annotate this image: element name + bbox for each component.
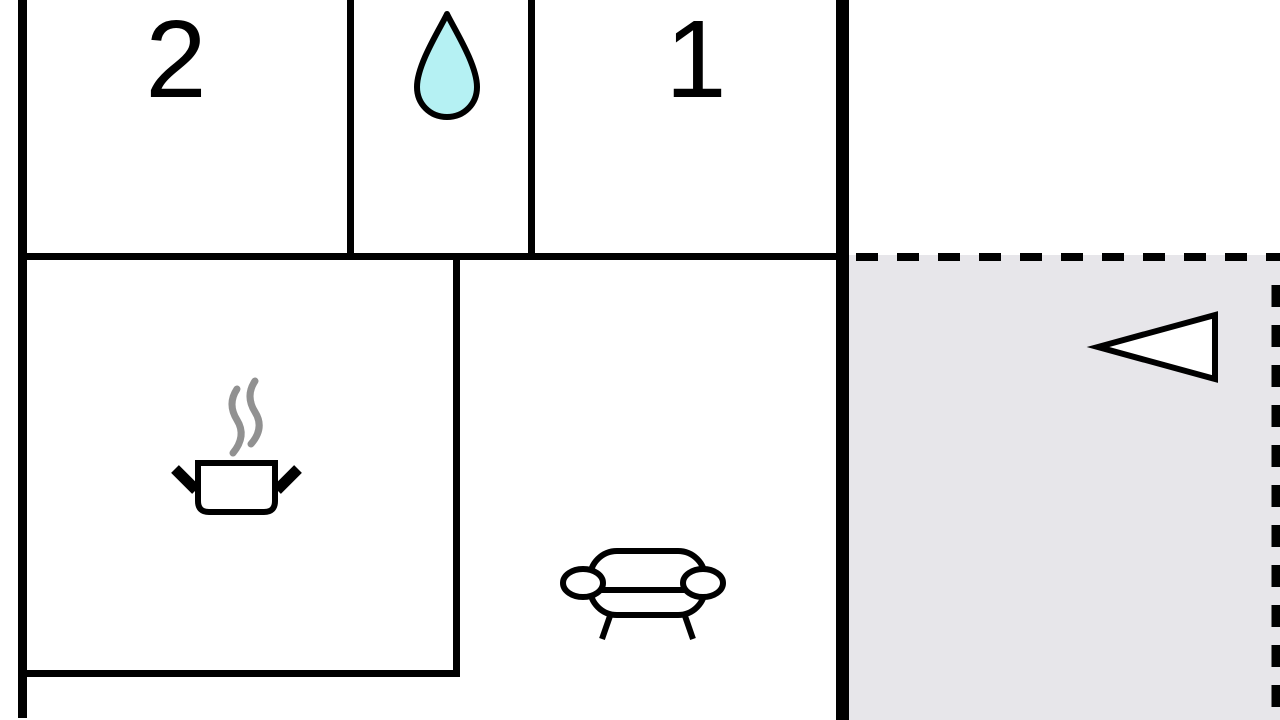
- sofa-leg-left: [602, 616, 610, 639]
- steam-wave-left: [232, 389, 241, 453]
- room-label-bedroom1: 1: [665, 0, 726, 121]
- steam-wave-right: [250, 381, 259, 444]
- wall-bathroom-bedroom1: [528, 0, 535, 258]
- wall-kitchen-living: [453, 253, 460, 677]
- sofa-armrest-right: [683, 569, 723, 597]
- water-drop-icon: [417, 14, 477, 117]
- wall-left: [18, 0, 27, 718]
- wall-horizontal-main: [18, 253, 849, 260]
- sofa-leg-right: [685, 616, 693, 639]
- wall-bedroom2-bathroom: [347, 0, 354, 258]
- pot-body: [198, 463, 275, 512]
- floor-plan-drawing: 2 1: [0, 0, 1280, 720]
- wall-kitchen-bottom: [18, 670, 460, 677]
- sofa-icon: [563, 551, 723, 639]
- cooking-pot-icon: [175, 381, 298, 512]
- sofa-armrest-left: [563, 569, 603, 597]
- room-label-bedroom2: 2: [145, 0, 206, 121]
- pot-handle-left: [175, 469, 196, 490]
- pot-handle-right: [277, 469, 298, 490]
- wall-right-thick: [836, 0, 849, 720]
- floor-plan: 2 1: [0, 0, 1280, 720]
